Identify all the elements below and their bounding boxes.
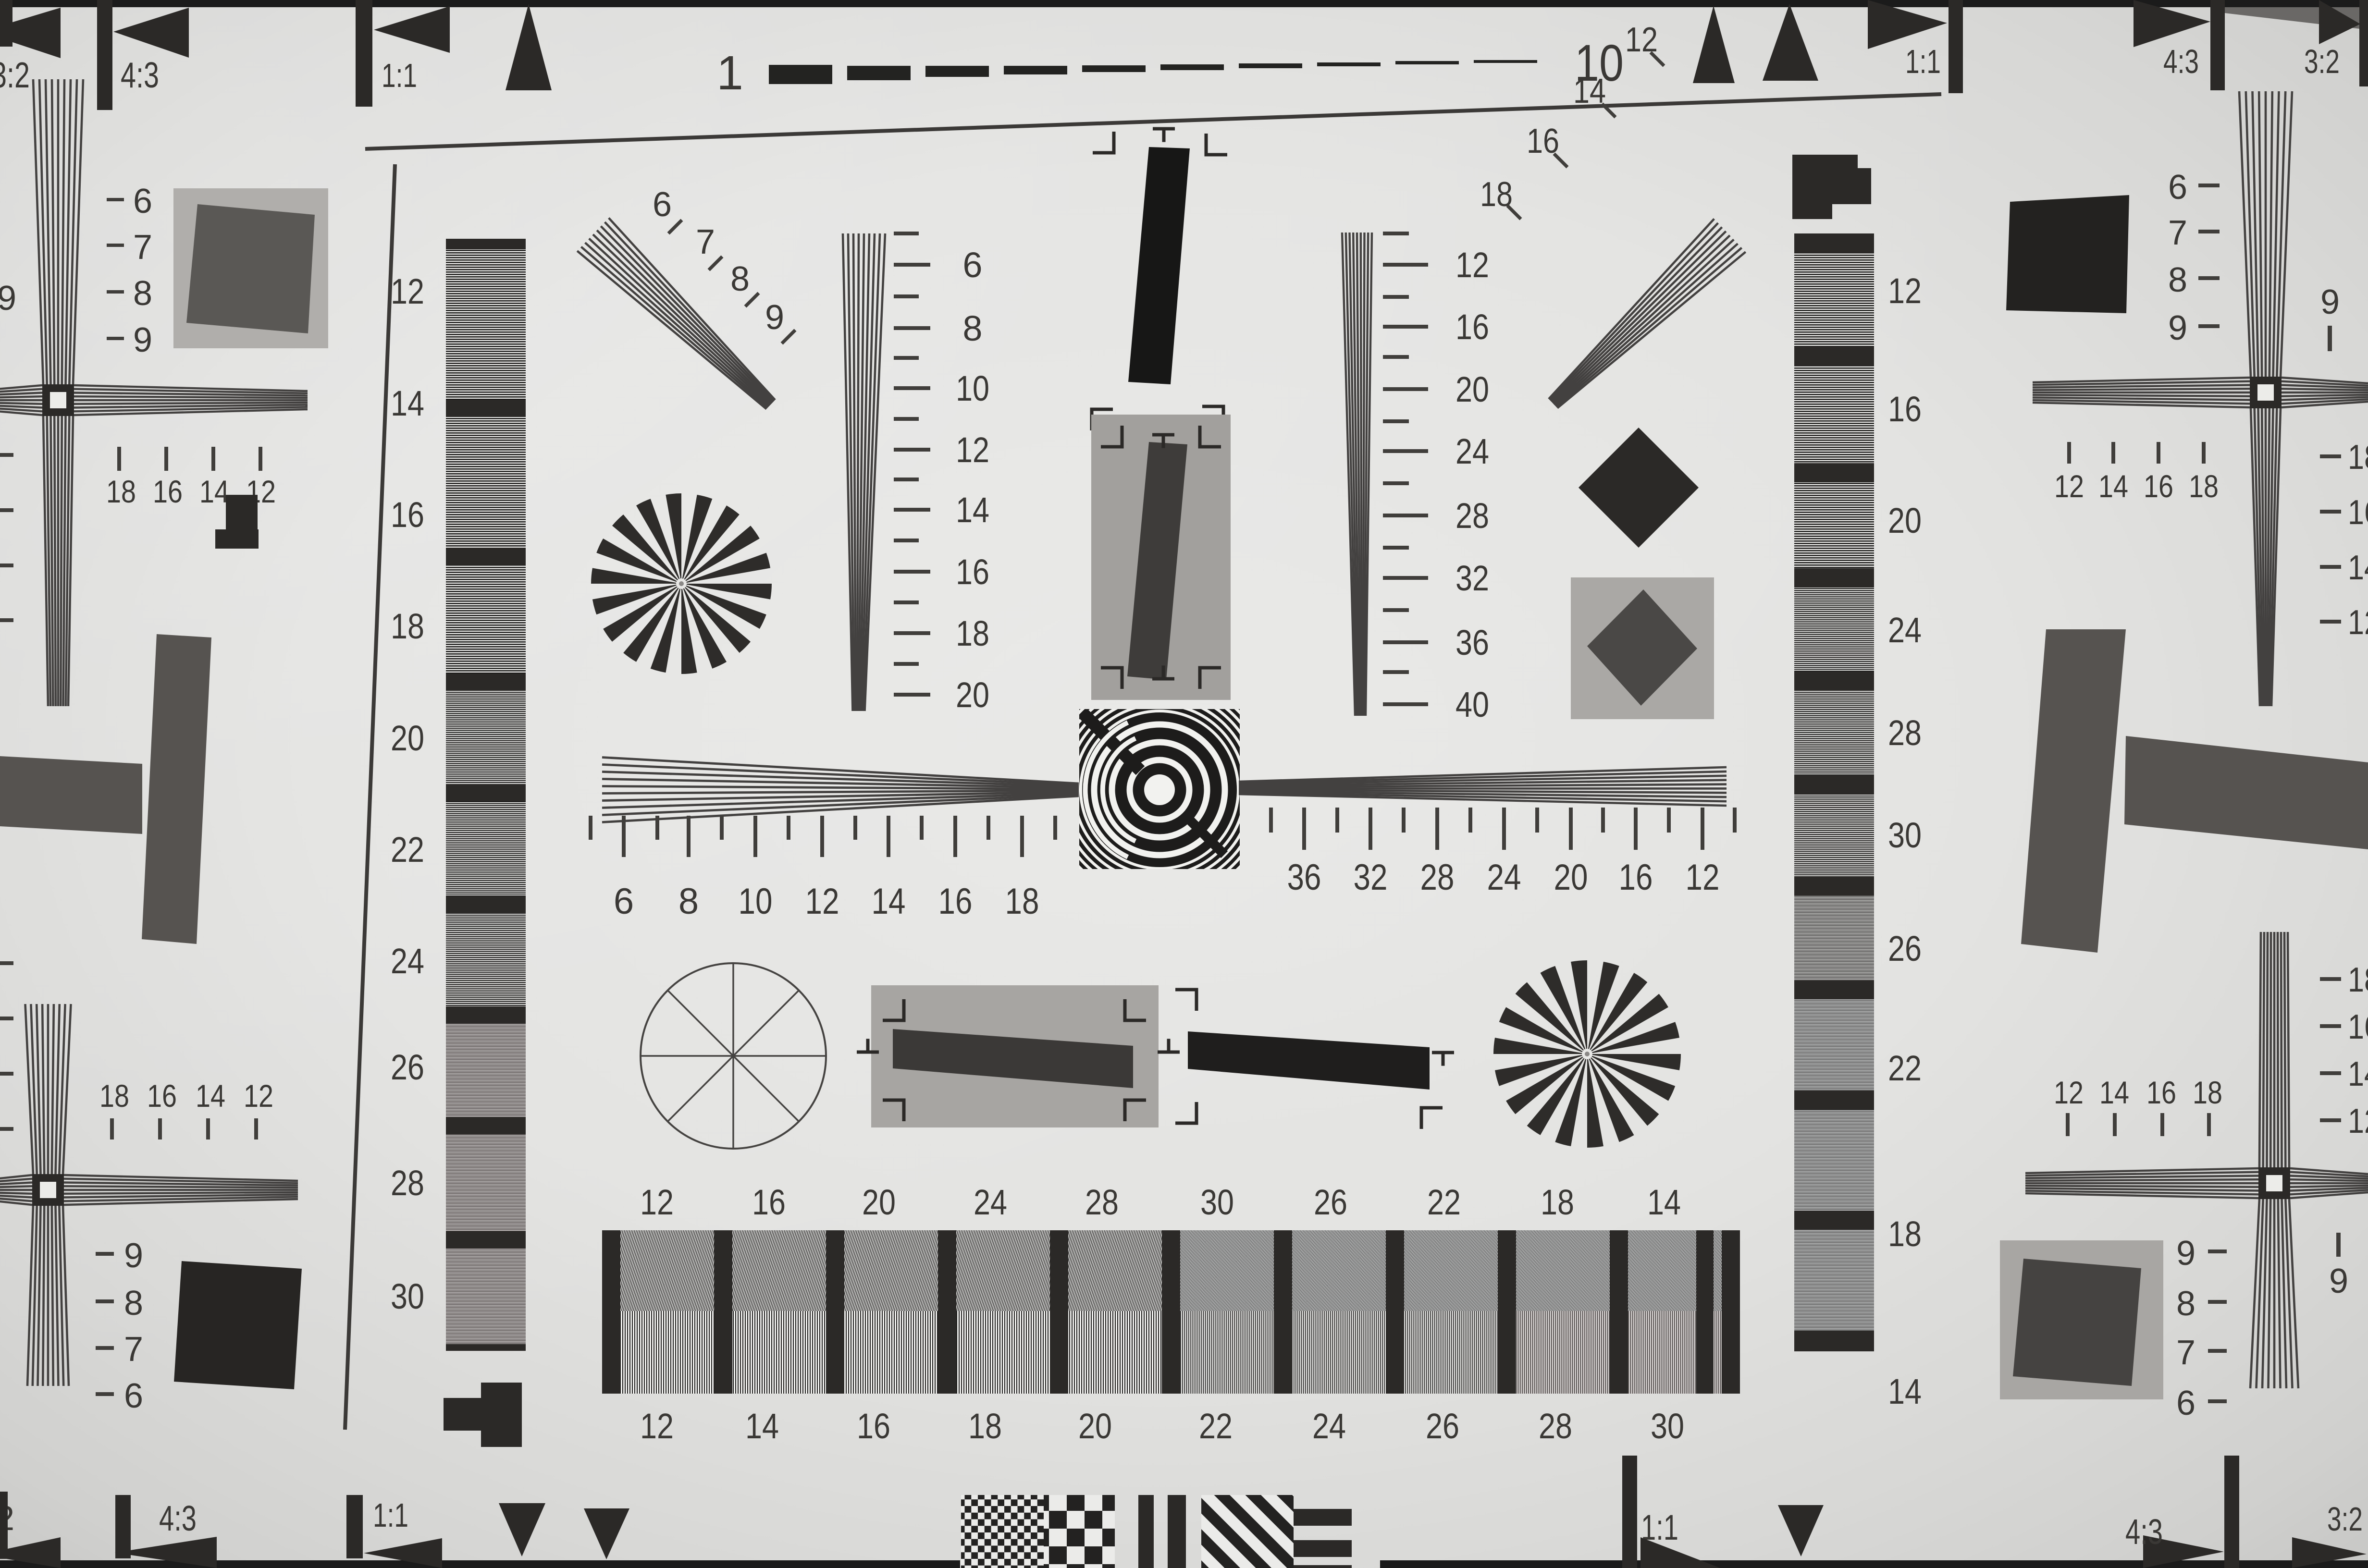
svg-text:26: 26 bbox=[1314, 1182, 1347, 1222]
svg-text:16: 16 bbox=[752, 1182, 786, 1222]
svg-text:22: 22 bbox=[1199, 1406, 1233, 1446]
svg-text:12: 12 bbox=[1888, 271, 1922, 311]
svg-text:30: 30 bbox=[1200, 1182, 1234, 1222]
svg-text:12: 12 bbox=[640, 1406, 674, 1446]
svg-text:14: 14 bbox=[199, 474, 229, 509]
svg-text:12: 12 bbox=[956, 430, 989, 470]
svg-text:3:2: 3:2 bbox=[2327, 1500, 2363, 1538]
svg-text:24: 24 bbox=[1487, 857, 1521, 898]
svg-text:36: 36 bbox=[1455, 623, 1489, 662]
svg-text:24: 24 bbox=[1312, 1406, 1346, 1446]
svg-text:4:3: 4:3 bbox=[159, 1498, 197, 1538]
svg-text:18: 18 bbox=[1888, 1214, 1922, 1254]
svg-text:3:2: 3:2 bbox=[0, 55, 30, 95]
svg-text:28: 28 bbox=[1888, 713, 1922, 753]
svg-text:4:3: 4:3 bbox=[121, 55, 159, 95]
svg-text:28: 28 bbox=[1420, 857, 1455, 898]
svg-text:16: 16 bbox=[2348, 493, 2368, 532]
svg-text:16: 16 bbox=[147, 1078, 177, 1114]
svg-text:9: 9 bbox=[0, 279, 16, 318]
svg-text:18: 18 bbox=[99, 1078, 129, 1114]
svg-text:12: 12 bbox=[2054, 1075, 2084, 1110]
svg-text:14: 14 bbox=[1888, 1372, 1922, 1411]
svg-text:12: 12 bbox=[2348, 603, 2368, 642]
svg-text:14: 14 bbox=[196, 1078, 225, 1114]
svg-text:8: 8 bbox=[124, 1284, 143, 1323]
svg-text:16: 16 bbox=[2348, 1008, 2368, 1046]
svg-text:18: 18 bbox=[1005, 881, 1039, 922]
svg-text:16: 16 bbox=[153, 474, 183, 509]
svg-text:20: 20 bbox=[1455, 369, 1489, 409]
svg-text:16: 16 bbox=[1619, 857, 1653, 898]
svg-text:14: 14 bbox=[872, 881, 906, 922]
svg-text:16: 16 bbox=[857, 1406, 890, 1446]
svg-text:12: 12 bbox=[805, 881, 839, 922]
svg-text:18: 18 bbox=[1541, 1182, 1574, 1222]
svg-text:28: 28 bbox=[1539, 1406, 1572, 1446]
svg-text:16: 16 bbox=[2146, 1075, 2176, 1110]
svg-text:18: 18 bbox=[106, 474, 136, 509]
svg-text:9: 9 bbox=[2168, 309, 2187, 347]
svg-text:3:2: 3:2 bbox=[2304, 43, 2340, 80]
svg-text:8: 8 bbox=[2168, 261, 2187, 299]
svg-text:8: 8 bbox=[962, 308, 982, 348]
svg-text:16: 16 bbox=[2144, 468, 2173, 504]
svg-text:12: 12 bbox=[244, 1078, 273, 1114]
svg-text:20: 20 bbox=[862, 1182, 896, 1222]
svg-text:6: 6 bbox=[962, 245, 982, 285]
svg-text:7: 7 bbox=[124, 1330, 143, 1369]
svg-text:20: 20 bbox=[1078, 1406, 1112, 1446]
svg-text:26: 26 bbox=[1426, 1406, 1459, 1446]
svg-text:20: 20 bbox=[1554, 857, 1588, 898]
svg-text:6: 6 bbox=[2176, 1384, 2195, 1422]
svg-text:12: 12 bbox=[1455, 245, 1489, 285]
svg-text:10: 10 bbox=[739, 881, 773, 922]
svg-text:9: 9 bbox=[765, 298, 784, 337]
svg-text:16: 16 bbox=[938, 881, 973, 922]
svg-text:18: 18 bbox=[2193, 1075, 2222, 1110]
svg-text:30: 30 bbox=[1651, 1406, 1684, 1446]
svg-text:1:1: 1:1 bbox=[1905, 43, 1941, 80]
svg-text:14: 14 bbox=[745, 1406, 779, 1446]
svg-text:7: 7 bbox=[2176, 1334, 2195, 1372]
svg-text:8: 8 bbox=[678, 881, 699, 922]
svg-text:20: 20 bbox=[956, 675, 989, 715]
svg-text:14: 14 bbox=[1573, 72, 1606, 110]
svg-text:18: 18 bbox=[968, 1406, 1002, 1446]
svg-text:18: 18 bbox=[391, 606, 424, 646]
svg-text:8: 8 bbox=[730, 260, 750, 298]
svg-text:24: 24 bbox=[974, 1182, 1007, 1222]
svg-text:36: 36 bbox=[1287, 857, 1321, 898]
svg-text:6: 6 bbox=[124, 1377, 143, 1415]
svg-text:24: 24 bbox=[1888, 610, 1922, 650]
svg-text:6: 6 bbox=[133, 182, 152, 220]
svg-text:10: 10 bbox=[956, 368, 989, 408]
svg-text:18: 18 bbox=[956, 613, 989, 653]
svg-text:6: 6 bbox=[2168, 168, 2187, 207]
svg-text:28: 28 bbox=[1085, 1182, 1119, 1222]
svg-text:24: 24 bbox=[391, 941, 424, 981]
svg-text:18: 18 bbox=[2348, 961, 2368, 999]
svg-text:8: 8 bbox=[2176, 1285, 2195, 1323]
svg-text:1:1: 1:1 bbox=[373, 1496, 408, 1534]
svg-text:1: 1 bbox=[716, 46, 743, 100]
svg-text:40: 40 bbox=[1455, 685, 1489, 724]
svg-text:6: 6 bbox=[653, 185, 672, 224]
svg-text:32: 32 bbox=[1354, 857, 1388, 898]
svg-text:16: 16 bbox=[1888, 389, 1922, 429]
svg-text:8: 8 bbox=[133, 274, 152, 313]
svg-text:22: 22 bbox=[1888, 1048, 1922, 1088]
svg-text:9: 9 bbox=[2176, 1234, 2195, 1273]
svg-text:28: 28 bbox=[391, 1163, 424, 1203]
svg-text:14: 14 bbox=[956, 490, 989, 530]
svg-text:7: 7 bbox=[696, 223, 715, 261]
svg-text:26: 26 bbox=[1888, 929, 1922, 968]
svg-text:14: 14 bbox=[1647, 1182, 1681, 1222]
svg-text:32: 32 bbox=[1455, 558, 1489, 598]
svg-text:9: 9 bbox=[133, 321, 152, 359]
svg-text:22: 22 bbox=[391, 830, 424, 870]
svg-text:14: 14 bbox=[2348, 549, 2368, 587]
svg-text:20: 20 bbox=[1888, 501, 1922, 540]
svg-text:12: 12 bbox=[2348, 1102, 2368, 1140]
svg-text:28: 28 bbox=[1455, 496, 1489, 536]
svg-text:18: 18 bbox=[2189, 468, 2219, 504]
svg-text:16: 16 bbox=[956, 552, 989, 592]
svg-text:14: 14 bbox=[391, 383, 424, 423]
svg-text:4:3: 4:3 bbox=[2125, 1512, 2163, 1552]
svg-text:16: 16 bbox=[391, 495, 424, 535]
svg-text:12: 12 bbox=[391, 271, 424, 311]
svg-text:7: 7 bbox=[133, 228, 152, 267]
svg-text:12: 12 bbox=[2054, 468, 2084, 504]
svg-text:14: 14 bbox=[2099, 1075, 2129, 1110]
svg-text:9: 9 bbox=[2320, 283, 2340, 321]
svg-text:30: 30 bbox=[391, 1276, 424, 1316]
svg-text:9: 9 bbox=[124, 1237, 143, 1275]
svg-text:4:3: 4:3 bbox=[2163, 43, 2199, 80]
svg-text:9: 9 bbox=[2329, 1262, 2348, 1300]
svg-text:7: 7 bbox=[2168, 214, 2187, 252]
svg-text:30: 30 bbox=[1888, 815, 1922, 855]
svg-text:12: 12 bbox=[640, 1182, 674, 1222]
svg-text:12: 12 bbox=[1686, 857, 1720, 898]
svg-text:14: 14 bbox=[2098, 468, 2128, 504]
svg-text:16: 16 bbox=[1455, 307, 1489, 347]
svg-text:20: 20 bbox=[391, 718, 424, 758]
svg-text:6: 6 bbox=[614, 881, 634, 922]
svg-text:24: 24 bbox=[1455, 431, 1489, 471]
svg-text:1:1: 1:1 bbox=[382, 57, 417, 94]
svg-text:22: 22 bbox=[1427, 1182, 1461, 1222]
svg-text:18: 18 bbox=[2348, 438, 2368, 477]
svg-text:14: 14 bbox=[2348, 1055, 2368, 1093]
svg-text:26: 26 bbox=[391, 1047, 424, 1087]
